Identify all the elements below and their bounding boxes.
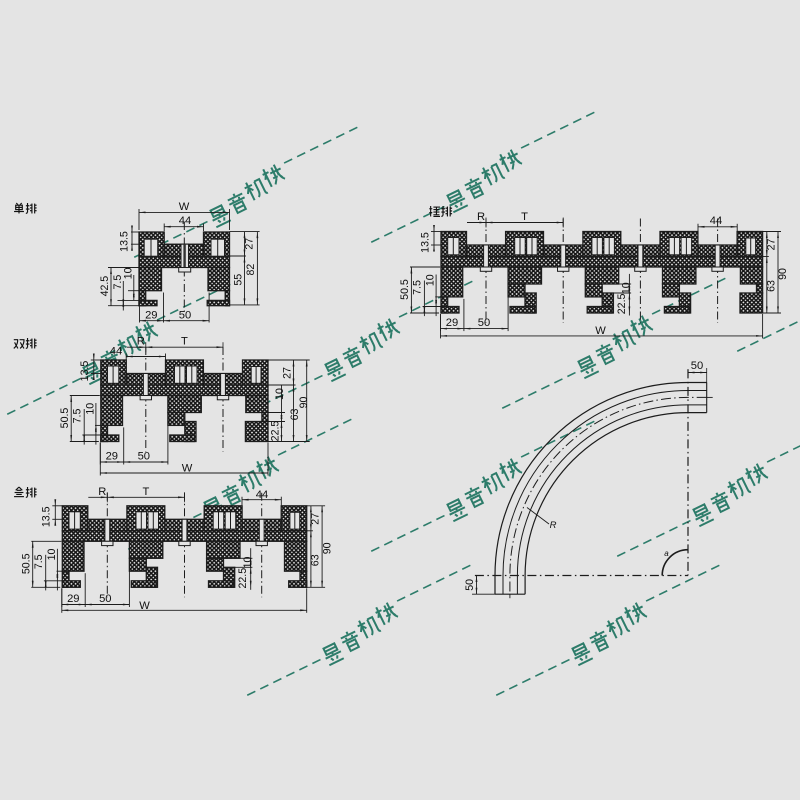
svg-text:29: 29 (446, 317, 458, 329)
svg-text:50: 50 (691, 360, 703, 372)
svg-text:50.5: 50.5 (59, 408, 71, 429)
svg-text:W: W (179, 201, 190, 213)
svg-text:22.5: 22.5 (269, 421, 281, 442)
svg-text:27: 27 (281, 367, 293, 379)
svg-text:50: 50 (99, 593, 111, 605)
svg-text:W: W (182, 462, 193, 474)
svg-text:10: 10 (84, 403, 96, 415)
svg-text:90: 90 (777, 268, 789, 280)
svg-text:T: T (181, 336, 188, 348)
svg-text:50.5: 50.5 (399, 279, 411, 300)
svg-text:W: W (595, 325, 606, 337)
svg-text:13.5: 13.5 (41, 506, 53, 527)
svg-text:10: 10 (46, 549, 58, 561)
svg-text:7.5: 7.5 (33, 554, 45, 569)
svg-text:63: 63 (310, 554, 322, 566)
svg-text:R: R (137, 336, 145, 348)
svg-text:10: 10 (122, 267, 134, 279)
svg-text:55: 55 (232, 274, 244, 286)
svg-text:44: 44 (179, 215, 191, 227)
svg-text:90: 90 (298, 397, 310, 409)
svg-text:10: 10 (274, 388, 286, 400)
svg-text:27: 27 (766, 239, 778, 251)
svg-text:T: T (142, 486, 149, 498)
svg-text:29: 29 (106, 450, 118, 462)
svg-text:50: 50 (138, 450, 150, 462)
svg-text:50: 50 (464, 579, 476, 591)
svg-text:13.5: 13.5 (419, 232, 431, 253)
svg-text:44: 44 (710, 215, 722, 227)
svg-text:13.5: 13.5 (79, 361, 91, 382)
svg-text:63: 63 (766, 280, 778, 292)
svg-text:82: 82 (245, 264, 257, 276)
svg-text:R: R (550, 520, 557, 531)
svg-text:42.5: 42.5 (99, 276, 111, 297)
svg-text:63: 63 (289, 409, 301, 421)
svg-text:R: R (98, 486, 106, 498)
svg-text:27: 27 (310, 513, 322, 525)
svg-text:7.5: 7.5 (71, 409, 83, 424)
svg-text:44: 44 (110, 345, 122, 357)
svg-text:a: a (664, 549, 669, 558)
svg-text:29: 29 (145, 309, 157, 321)
svg-text:50: 50 (478, 317, 490, 329)
svg-text:T: T (521, 211, 528, 223)
svg-text:90: 90 (321, 542, 333, 554)
svg-text:10: 10 (620, 282, 632, 294)
svg-text:13.5: 13.5 (118, 231, 130, 252)
svg-text:22.5: 22.5 (237, 568, 249, 589)
svg-text:27: 27 (244, 238, 256, 250)
svg-text:R: R (477, 211, 485, 223)
svg-text:W: W (139, 600, 150, 612)
svg-text:10: 10 (242, 557, 254, 569)
svg-text:29: 29 (67, 593, 79, 605)
svg-text:22.5: 22.5 (616, 293, 628, 314)
svg-text:10: 10 (425, 274, 437, 286)
svg-text:50: 50 (179, 309, 191, 321)
svg-text:44: 44 (256, 489, 268, 501)
svg-text:7.5: 7.5 (411, 280, 423, 295)
svg-text:50.5: 50.5 (20, 553, 32, 574)
